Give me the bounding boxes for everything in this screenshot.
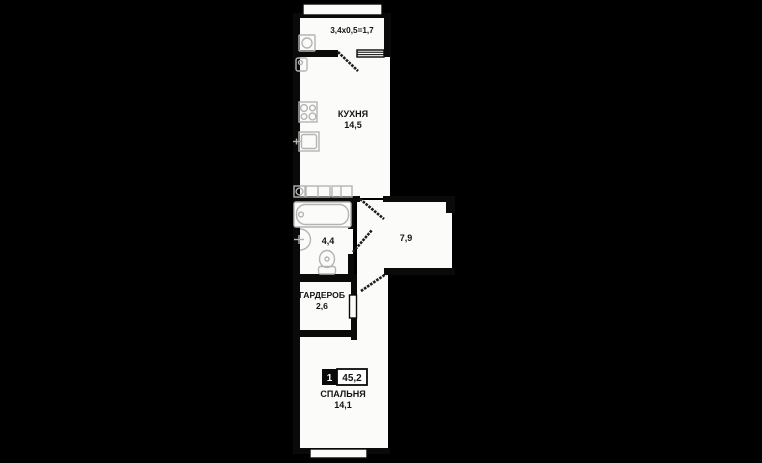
- bathtub-icon: [294, 202, 351, 227]
- wardrobe-area-label: 2,6: [316, 301, 328, 311]
- wall-bathroom-bottom: [293, 274, 357, 282]
- kitchen-name-label: КУХНЯ: [338, 109, 368, 119]
- kitchen-area-label: 14,5: [344, 120, 362, 130]
- unit-number: 1: [327, 373, 333, 384]
- wall-hallway-bottom: [384, 268, 455, 275]
- wall-bathroom-right-lower: [348, 254, 354, 276]
- floor-plan-canvas: 3,4х0,5=1,7 КУХНЯ 14,5 4,4 7,9 ГАРДЕРОБ …: [0, 0, 762, 463]
- room-passage: [357, 268, 388, 340]
- wall-outer-left: [293, 13, 300, 454]
- bedroom-window: [310, 449, 367, 458]
- bathroom-area-label: 4,4: [322, 236, 335, 246]
- wall-balcony-right: [384, 13, 391, 57]
- unit-badge[interactable]: 1 45,2: [322, 369, 367, 385]
- balcony-divider-window: [357, 50, 384, 57]
- balcony-dims-label: 3,4х0,5=1,7: [330, 26, 374, 35]
- wall-hallway-top: [383, 196, 455, 202]
- bedroom-area-label: 14,1: [334, 400, 352, 410]
- wardrobe-name-label: ГАРДЕРОБ: [299, 290, 345, 300]
- wardrobe-door-leaf: [350, 295, 357, 318]
- balcony-top-window: [303, 4, 382, 15]
- total-area-value: 45,2: [342, 373, 362, 384]
- floor-plan-drawing: 3,4х0,5=1,7 КУХНЯ 14,5 4,4 7,9 ГАРДЕРОБ …: [0, 0, 762, 463]
- bedroom-name-label: СПАЛЬНЯ: [320, 389, 365, 399]
- wall-wardrobe-bottom: [293, 330, 357, 337]
- hallway-area-label: 7,9: [400, 233, 413, 243]
